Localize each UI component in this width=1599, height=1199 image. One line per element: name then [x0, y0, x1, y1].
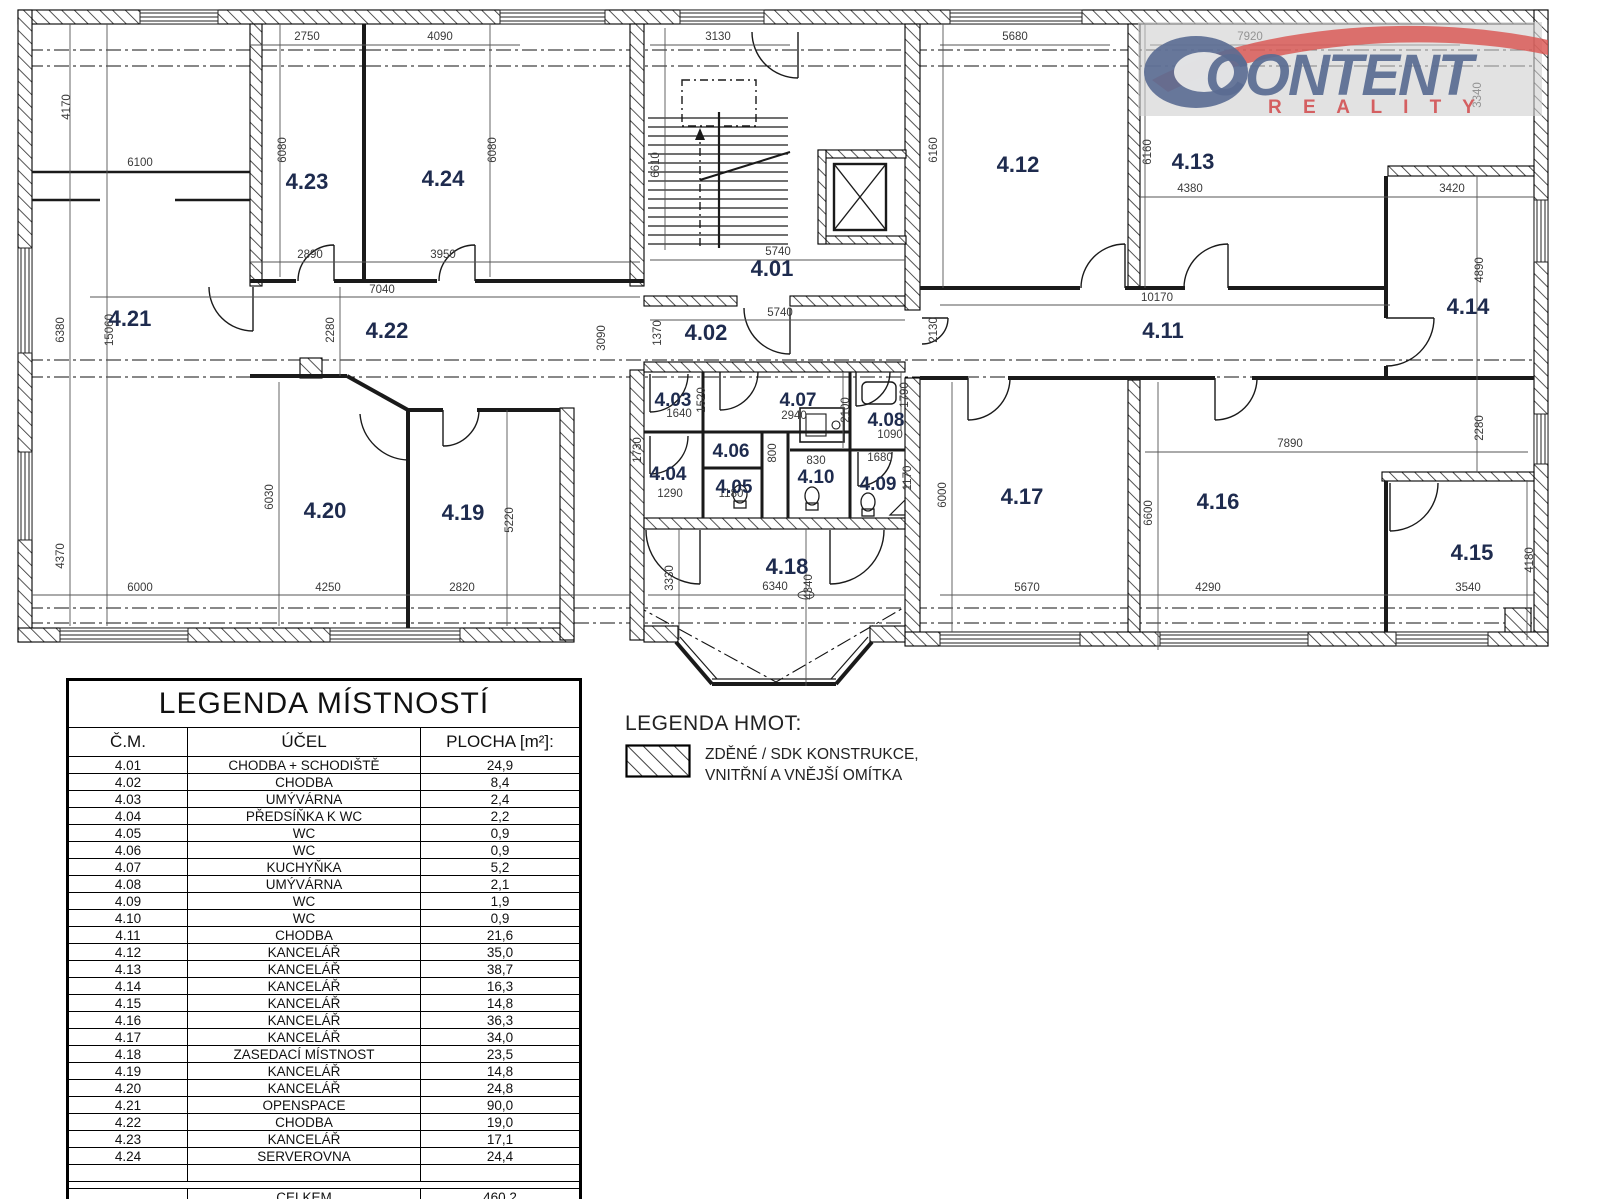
room-purpose: KANCELÁŘ: [188, 961, 421, 978]
floor-plan-page: 4170 6100 2750 4090 3130 5680 7920 3340 …: [0, 0, 1599, 1199]
room-label-4-01: 4.01: [751, 256, 794, 281]
materials-legend: LEGENDA HMOT: ZDĚNÉ / SDK KONSTRUKCE, VN…: [625, 712, 919, 786]
room-purpose: KANCELÁŘ: [188, 978, 421, 995]
room-purpose: CHODBA: [188, 1114, 421, 1131]
dim-label: 6030: [264, 484, 276, 510]
room-number: 4.19: [68, 1063, 188, 1080]
dim-label: 1170: [902, 466, 914, 491]
dim-label: 2130: [928, 317, 940, 343]
hatch-swatch-icon: [625, 744, 691, 778]
legend-row: 4.06WC0,9: [68, 842, 581, 859]
room-purpose: KANCELÁŘ: [188, 995, 421, 1012]
dim-label: 6100: [127, 157, 153, 169]
room-number: 4.18: [68, 1046, 188, 1063]
room-purpose: PŘEDSÍŇKA K WC: [188, 808, 421, 825]
room-purpose: KANCELÁŘ: [188, 944, 421, 961]
dim-label: 6080: [487, 137, 499, 163]
dim-label: 6000: [937, 482, 949, 508]
room-purpose: KANCELÁŘ: [188, 1012, 421, 1029]
room-number: 4.07: [68, 859, 188, 876]
room-number: 4.02: [68, 774, 188, 791]
room-area: 35,0: [421, 944, 581, 961]
materials-legend-line2: VNITŘNÍ A VNĚJŠÍ OMÍTKA: [705, 765, 919, 786]
materials-legend-title: LEGENDA HMOT:: [625, 712, 919, 736]
room-label-4-06: 4.06: [713, 441, 750, 462]
legend-row: 4.16KANCELÁŘ36,3: [68, 1012, 581, 1029]
room-label-4-11: 4.11: [1142, 318, 1184, 343]
room-number: 4.09: [68, 893, 188, 910]
legend-row: 4.13KANCELÁŘ38,7: [68, 961, 581, 978]
dim-label: 3130: [705, 31, 731, 43]
legend-row: 4.19KANCELÁŘ14,8: [68, 1063, 581, 1080]
dim-label: 6160: [1142, 139, 1154, 165]
legend-row: 4.04PŘEDSÍŇKA K WC2,2: [68, 808, 581, 825]
room-area: 2,1: [421, 876, 581, 893]
dim-label: 3090: [596, 325, 608, 351]
room-number: 4.20: [68, 1080, 188, 1097]
legend-empty-row: [68, 1165, 581, 1182]
dim-label: 7040: [369, 284, 395, 296]
dim-label: 1680: [867, 452, 893, 464]
dim-label: 1790: [899, 382, 911, 408]
legend-row: 4.10WC0,9: [68, 910, 581, 927]
dim-label: 800: [767, 443, 779, 462]
room-label-4-13: 4.13: [1172, 149, 1215, 174]
room-label-4-17: 4.17: [1001, 484, 1044, 509]
dim-label: 3540: [1455, 582, 1481, 594]
legend-row: 4.15KANCELÁŘ14,8: [68, 995, 581, 1012]
dim-label: 3330: [664, 565, 676, 591]
dim-label: 2820: [449, 582, 475, 594]
legend-row: 4.07KUCHYŇKA5,2: [68, 859, 581, 876]
room-number: 4.15: [68, 995, 188, 1012]
legend-row: 4.20KANCELÁŘ24,8: [68, 1080, 581, 1097]
legend-row: 4.01CHODBA + SCHODIŠTĚ24,9: [68, 757, 581, 774]
dim-label: 4890: [1474, 257, 1486, 283]
room-area: 24,4: [421, 1148, 581, 1165]
room-number: 4.13: [68, 961, 188, 978]
legend-header-plocha: PLOCHA [m²]:: [421, 728, 581, 757]
legend-row: 4.03UMÝVÁRNA2,4: [68, 791, 581, 808]
corner-sink-icon: [890, 500, 905, 515]
room-purpose: ZASEDACÍ MÍSTNOST: [188, 1046, 421, 1063]
legend-total-row: CELKEM 460,2: [68, 1189, 581, 1199]
dim-label: 6000: [127, 582, 153, 594]
dim-label: 2940: [781, 410, 807, 422]
room-label-4-08: 4.08: [868, 410, 905, 431]
room-area: 5,2: [421, 859, 581, 876]
room-area: 24,9: [421, 757, 581, 774]
room-number: 4.03: [68, 791, 188, 808]
legend-row: 4.08UMÝVÁRNA2,1: [68, 876, 581, 893]
dim-label: 5740: [767, 307, 793, 319]
dim-label: 6340: [762, 581, 788, 593]
elevator: [834, 164, 886, 230]
dim-label: 7890: [1277, 438, 1303, 450]
room-area: 2,2: [421, 808, 581, 825]
room-number: 4.12: [68, 944, 188, 961]
dim-label: 1730: [632, 437, 644, 463]
dim-label: 4090: [427, 31, 453, 43]
room-number: 4.22: [68, 1114, 188, 1131]
dim-label: 4290: [1195, 582, 1221, 594]
legend-row: 4.11CHODBA21,6: [68, 927, 581, 944]
room-number: 4.23: [68, 1131, 188, 1148]
room-area: 38,7: [421, 961, 581, 978]
room-number: 4.14: [68, 978, 188, 995]
room-label-4-12: 4.12: [997, 152, 1040, 177]
dim-label: 1290: [657, 488, 683, 500]
legend-row: 4.12KANCELÁŘ35,0: [68, 944, 581, 961]
room-area: 0,9: [421, 825, 581, 842]
room-number: 4.10: [68, 910, 188, 927]
room-number: 4.11: [68, 927, 188, 944]
dim-label: 1520: [696, 387, 708, 413]
toilet-icon: [805, 487, 819, 510]
dim-label: 5680: [1002, 31, 1028, 43]
dim-label: 6080: [277, 137, 289, 163]
room-label-4-21: 4.21: [109, 306, 152, 331]
room-label-4-24: 4.24: [422, 166, 466, 191]
room-area: 21,6: [421, 927, 581, 944]
legend-row: 4.18ZASEDACÍ MÍSTNOST23,5: [68, 1046, 581, 1063]
room-label-4-03: 4.03: [655, 390, 692, 411]
legend-row: 4.09WC1,9: [68, 893, 581, 910]
room-area: 34,0: [421, 1029, 581, 1046]
legend-row: 4.23KANCELÁŘ17,1: [68, 1131, 581, 1148]
room-purpose: WC: [188, 842, 421, 859]
dim-label: 830: [806, 455, 825, 467]
legend-row: 4.21OPENSPACE90,0: [68, 1097, 581, 1114]
room-purpose: SERVEROVNA: [188, 1148, 421, 1165]
logo-sub-text: R E A L I T Y: [1268, 97, 1483, 118]
room-number: 4.16: [68, 1012, 188, 1029]
washbasin-icon: [862, 382, 896, 404]
room-area: 2,4: [421, 791, 581, 808]
legend-row: 4.22CHODBA19,0: [68, 1114, 581, 1131]
room-purpose: WC: [188, 825, 421, 842]
dim-label: 1370: [652, 320, 664, 346]
room-label-4-05: 4.05: [716, 477, 753, 498]
room-area: 24,8: [421, 1080, 581, 1097]
room-purpose: WC: [188, 910, 421, 927]
room-area: 36,3: [421, 1012, 581, 1029]
room-label-4-19: 4.19: [442, 500, 485, 525]
legend-total-value: 460,2: [421, 1189, 581, 1199]
room-purpose: CHODBA: [188, 927, 421, 944]
room-number: 4.08: [68, 876, 188, 893]
dim-label: 10170: [1141, 292, 1173, 304]
dim-label: 4380: [1177, 183, 1203, 195]
room-purpose: KUCHYŇKA: [188, 859, 421, 876]
room-number: 4.24: [68, 1148, 188, 1165]
legend-row: 4.14KANCELÁŘ16,3: [68, 978, 581, 995]
legend-header-ucel: ÚČEL: [188, 728, 421, 757]
room-area: 14,8: [421, 995, 581, 1012]
room-label-4-20: 4.20: [304, 498, 347, 523]
dim-label: 6380: [55, 317, 67, 343]
materials-legend-line1: ZDĚNÉ / SDK KONSTRUKCE,: [705, 744, 919, 765]
dim-label: 2280: [325, 317, 337, 343]
room-number: 4.17: [68, 1029, 188, 1046]
staircase: [648, 80, 790, 248]
legend-total-label: CELKEM: [188, 1189, 421, 1199]
room-purpose: KANCELÁŘ: [188, 1080, 421, 1097]
room-label-4-22: 4.22: [366, 318, 409, 343]
dim-label: 2750: [294, 31, 320, 43]
room-purpose: UMÝVÁRNA: [188, 876, 421, 893]
room-label-4-23: 4.23: [286, 169, 329, 194]
dim-label: 6160: [928, 137, 940, 163]
room-purpose: WC: [188, 893, 421, 910]
room-area: 14,8: [421, 1063, 581, 1080]
room-label-4-07: 4.07: [780, 390, 817, 411]
dim-label: 2890: [297, 249, 323, 261]
room-label-4-09: 4.09: [860, 474, 897, 495]
room-legend-title: LEGENDA MÍSTNOSTÍ: [68, 680, 581, 728]
dim-label: 4370: [55, 543, 67, 569]
room-purpose: UMÝVÁRNA: [188, 791, 421, 808]
room-purpose: KANCELÁŘ: [188, 1029, 421, 1046]
room-number: 4.01: [68, 757, 188, 774]
legend-row: 4.24SERVEROVNA24,4: [68, 1148, 581, 1165]
room-number: 4.21: [68, 1097, 188, 1114]
dim-label: 5670: [1014, 582, 1040, 594]
room-number: 4.04: [68, 808, 188, 825]
room-number: 4.05: [68, 825, 188, 842]
room-area: 0,9: [421, 910, 581, 927]
dim-label: 4250: [315, 582, 341, 594]
toilet-icon: [861, 493, 875, 516]
room-area: 23,5: [421, 1046, 581, 1063]
dim-label: 4170: [61, 94, 73, 120]
room-number: 4.06: [68, 842, 188, 859]
room-label-4-18: 4.18: [766, 554, 809, 579]
dim-label: 3950: [430, 249, 456, 261]
room-area: 8,4: [421, 774, 581, 791]
room-area: 0,9: [421, 842, 581, 859]
room-area: 19,0: [421, 1114, 581, 1131]
room-label-4-10: 4.10: [798, 467, 835, 488]
room-area: 16,3: [421, 978, 581, 995]
dim-label: 6600: [1143, 500, 1155, 526]
dim-label: 5220: [504, 507, 516, 533]
room-purpose: CHODBA: [188, 774, 421, 791]
room-label-4-04: 4.04: [650, 464, 687, 485]
floor-plan-drawing: 4170 6100 2750 4090 3130 5680 7920 3340 …: [0, 0, 1599, 700]
dim-label: 2280: [1474, 415, 1486, 441]
room-legend-table: LEGENDA MÍSTNOSTÍ Č.M. ÚČEL PLOCHA [m²]:…: [66, 678, 582, 1199]
room-label-4-14: 4.14: [1447, 294, 1491, 319]
brand-logo: CONTENT R E A L I T Y: [1138, 22, 1548, 118]
legend-row: 4.02CHODBA8,4: [68, 774, 581, 791]
dim-label: 3420: [1439, 183, 1465, 195]
legend-row: 4.17KANCELÁŘ34,0: [68, 1029, 581, 1046]
room-label-4-16: 4.16: [1197, 489, 1240, 514]
room-purpose: KANCELÁŘ: [188, 1063, 421, 1080]
legend-row: 4.05WC0,9: [68, 825, 581, 842]
dim-label: 2100: [840, 397, 852, 423]
room-purpose: CHODBA + SCHODIŠTĚ: [188, 757, 421, 774]
room-purpose: KANCELÁŘ: [188, 1131, 421, 1148]
room-purpose: OPENSPACE: [188, 1097, 421, 1114]
legend-header-cm: Č.M.: [68, 728, 188, 757]
room-label-4-15: 4.15: [1451, 540, 1494, 565]
room-area: 1,9: [421, 893, 581, 910]
dim-label: 6610: [650, 152, 662, 178]
room-label-4-02: 4.02: [685, 320, 728, 345]
room-area: 90,0: [421, 1097, 581, 1114]
room-area: 17,1: [421, 1131, 581, 1148]
dim-label: 4180: [1524, 547, 1536, 573]
